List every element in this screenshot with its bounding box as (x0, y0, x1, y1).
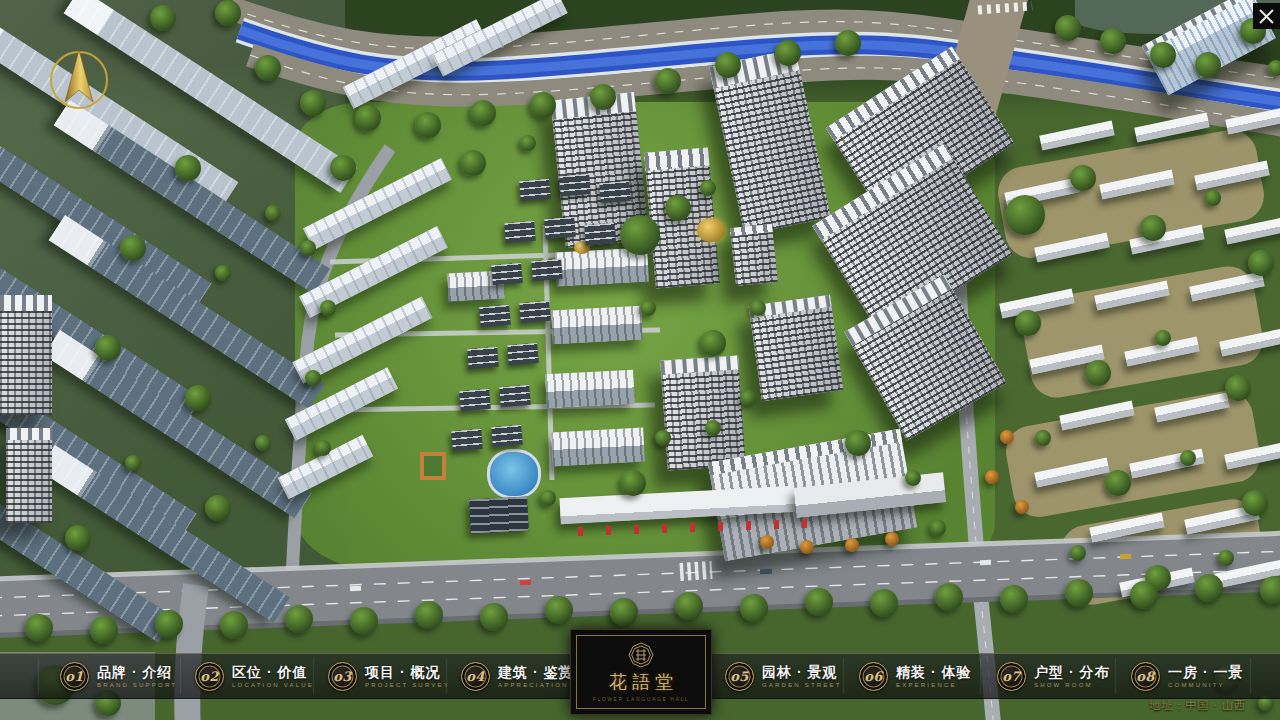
close-icon (1259, 9, 1274, 24)
orange-tree (985, 470, 999, 484)
car (1120, 554, 1131, 559)
tree (1085, 360, 1111, 386)
tree (125, 455, 141, 471)
tree (460, 150, 486, 176)
tree (1268, 60, 1280, 76)
tree (1225, 375, 1251, 401)
street-tree (155, 610, 183, 638)
tree (255, 55, 281, 81)
red-flag (662, 524, 667, 533)
tree (1105, 470, 1131, 496)
midrise-building (551, 428, 645, 467)
street-tree (1000, 585, 1028, 613)
menu-item-subtitle: EXPERIENCE (896, 682, 971, 688)
project-name-subtitle: FLOWER LANGUAGE HALL (593, 696, 689, 702)
tree (750, 300, 766, 316)
red-flag (690, 523, 695, 532)
tree (315, 440, 331, 456)
menu-item-architecture-appreciation[interactable]: o4 建筑 · 鉴赏 APPRECIATION (461, 654, 573, 698)
project-seal-icon (628, 642, 654, 668)
menu-item-garden-landscape[interactable]: o5 园林 · 景观 GARDEN STREET (725, 654, 842, 698)
courtyard-house (491, 263, 523, 286)
orange-tree (845, 538, 859, 552)
tree (255, 435, 271, 451)
menu-item-title: 品牌 · 介绍 (97, 665, 177, 679)
courtyard-house (519, 179, 551, 202)
street-tree (220, 611, 248, 639)
tree (355, 105, 381, 131)
tree (655, 430, 671, 446)
red-flag (634, 525, 639, 534)
tree (740, 390, 756, 406)
bar-separator (843, 658, 844, 694)
tree (1070, 545, 1086, 561)
menu-item-floorplan-distribution[interactable]: o7 户型 · 分布 SHOW ROOM (997, 654, 1109, 698)
street-tree (935, 583, 963, 611)
menu-item-subtitle: APPRECIATION (498, 682, 573, 688)
courtyard-garden (420, 452, 446, 480)
tree (590, 84, 616, 110)
orange-tree (800, 540, 814, 554)
street-tree (805, 588, 833, 616)
car (520, 580, 531, 585)
tree (215, 265, 231, 281)
courtyard-house (451, 429, 483, 452)
tree (845, 430, 871, 456)
courtyard-house (499, 385, 531, 408)
menu-item-subtitle: GARDEN STREET (762, 682, 842, 688)
menu-item-title: 建筑 · 鉴赏 (498, 665, 573, 679)
tree (520, 135, 536, 151)
tree (655, 68, 681, 94)
car (760, 569, 772, 574)
car (980, 560, 991, 565)
tree (1248, 250, 1274, 276)
courtyard-house (467, 347, 499, 370)
project-address: 地址：中国 · 山西 (1149, 698, 1246, 713)
tree (1035, 430, 1051, 446)
courtyard-house (559, 174, 591, 197)
project-name: 花語堂 (609, 670, 678, 694)
courtyard-house (544, 217, 576, 240)
courtyard-house (491, 425, 523, 448)
courtyard-house (459, 389, 491, 412)
midrise-building (551, 306, 643, 345)
street-tree (1130, 581, 1158, 609)
menu-item-brand-intro[interactable]: o1 品牌 · 介绍 BRAND SUPPORT (60, 654, 177, 698)
street-tree (480, 603, 508, 631)
red-flag (746, 521, 751, 530)
menu-item-title: 园林 · 景观 (762, 665, 842, 679)
bar-separator (38, 658, 39, 694)
menu-item-location-value[interactable]: o2 区位 · 价值 LOCATION VALUE (195, 654, 314, 698)
tree (265, 205, 281, 221)
tree (1055, 15, 1081, 41)
tree (1015, 310, 1041, 336)
tree (320, 300, 336, 316)
menu-item-title: 精装 · 体验 (896, 665, 971, 679)
tree (1155, 330, 1171, 346)
red-flag (802, 519, 807, 528)
tree (330, 155, 356, 181)
tree (640, 300, 656, 316)
tree (930, 520, 946, 536)
tree (65, 525, 91, 551)
tree (215, 0, 241, 26)
red-flag (606, 526, 611, 535)
orange-tree (1000, 430, 1014, 444)
street-tree (740, 594, 768, 622)
tree (120, 235, 146, 261)
tower-building (730, 224, 778, 286)
courtyard-house (531, 259, 563, 282)
street-tree (1195, 574, 1223, 602)
street-tree (545, 596, 573, 624)
tree (1218, 550, 1234, 566)
bar-separator (1250, 658, 1251, 694)
tree (905, 470, 921, 486)
clubhouse-building (469, 497, 529, 534)
tree (1242, 490, 1268, 516)
street-tree (1260, 576, 1280, 604)
tree (835, 30, 861, 56)
tree (705, 420, 721, 436)
red-flag (578, 527, 583, 536)
menu-item-subtitle: LOCATION VALUE (232, 682, 314, 688)
menu-item-one-room-one-view[interactable]: o8 一房 · 一景 COMMUNITY (1131, 654, 1243, 698)
bar-separator (180, 658, 181, 694)
menu-item-subtitle: BRAND SUPPORT (97, 682, 177, 688)
tree (305, 370, 321, 386)
menu-item-subtitle: COMMUNITY (1168, 682, 1243, 688)
tree (470, 100, 496, 126)
tree (1140, 215, 1166, 241)
menu-item-project-overview[interactable]: o3 项目 · 概况 PROJECT SURVEY (328, 654, 450, 698)
courtyard-house (504, 221, 536, 244)
tower-building (0, 295, 52, 415)
courtyard-house (519, 301, 551, 324)
menu-number-badge: o7 (997, 662, 1026, 691)
tree (300, 240, 316, 256)
menu-item-title: 一房 · 一景 (1168, 665, 1243, 679)
car (350, 586, 361, 591)
tree (1100, 28, 1126, 54)
orange-tree (885, 532, 899, 546)
tree (205, 495, 231, 521)
street-tree (610, 598, 638, 626)
tree (300, 90, 326, 116)
menu-number-badge: o8 (1131, 662, 1160, 691)
courtyard-house (479, 305, 511, 328)
bar-separator (1115, 658, 1116, 694)
menu-item-decor-experience[interactable]: o6 精装 · 体验 EXPERIENCE (859, 654, 971, 698)
street-tree (415, 601, 443, 629)
tree (665, 195, 691, 221)
tree (1070, 165, 1096, 191)
swimming-pool (487, 449, 541, 499)
tree (1180, 450, 1196, 466)
street-tree (675, 592, 703, 620)
street-tree (870, 589, 898, 617)
menu-item-title: 项目 · 概况 (365, 665, 450, 679)
tree (95, 335, 121, 361)
menu-number-badge: o4 (461, 662, 490, 691)
tower-building (660, 355, 745, 470)
menu-number-badge: o2 (195, 662, 224, 691)
courtyard-house (507, 343, 539, 366)
menu-number-badge: o3 (328, 662, 357, 691)
tree (1150, 42, 1176, 68)
red-flag (774, 520, 779, 529)
tree (1005, 195, 1045, 235)
tree (715, 52, 741, 78)
menu-number-badge: o1 (60, 662, 89, 691)
tree (700, 330, 726, 356)
tree (150, 5, 176, 31)
tree (185, 385, 211, 411)
tree (620, 470, 646, 496)
tree (530, 92, 556, 118)
tree (175, 155, 201, 181)
menu-item-subtitle: PROJECT SURVEY (365, 682, 450, 688)
tree (1205, 190, 1221, 206)
compass-icon (44, 38, 114, 118)
red-flag (718, 522, 723, 531)
courtyard-house (599, 181, 631, 204)
street-tree (90, 616, 118, 644)
bar-separator (980, 658, 981, 694)
tree (700, 180, 716, 196)
aerial-map[interactable] (0, 0, 1280, 720)
street-tree (25, 614, 53, 642)
tower-building (6, 428, 52, 523)
tree (540, 490, 556, 506)
menu-number-badge: o6 (859, 662, 888, 691)
tree (415, 112, 441, 138)
midrise-building (545, 370, 635, 409)
orange-tree (1015, 500, 1029, 514)
gold-art-feature (697, 218, 725, 242)
menu-number-badge: o5 (725, 662, 754, 691)
project-logo-frame: 花語堂 FLOWER LANGUAGE HALL (576, 635, 706, 709)
menu-item-title: 户型 · 分布 (1034, 665, 1109, 679)
tree (620, 215, 660, 255)
courtyard-house (584, 223, 616, 246)
street-tree (1065, 579, 1093, 607)
close-button[interactable] (1253, 3, 1280, 29)
street-tree (285, 605, 313, 633)
tree (775, 40, 801, 66)
street-tree (350, 607, 378, 635)
menu-item-title: 区位 · 价值 (232, 665, 314, 679)
project-logo-panel[interactable]: 花語堂 FLOWER LANGUAGE HALL (570, 629, 712, 715)
menu-item-subtitle: SHOW ROOM (1034, 682, 1109, 688)
sales-presentation-screen: o1 品牌 · 介绍 BRAND SUPPORT o2 区位 · 价值 LOCA… (0, 0, 1280, 720)
orange-tree (760, 535, 774, 549)
tree (1195, 52, 1221, 78)
